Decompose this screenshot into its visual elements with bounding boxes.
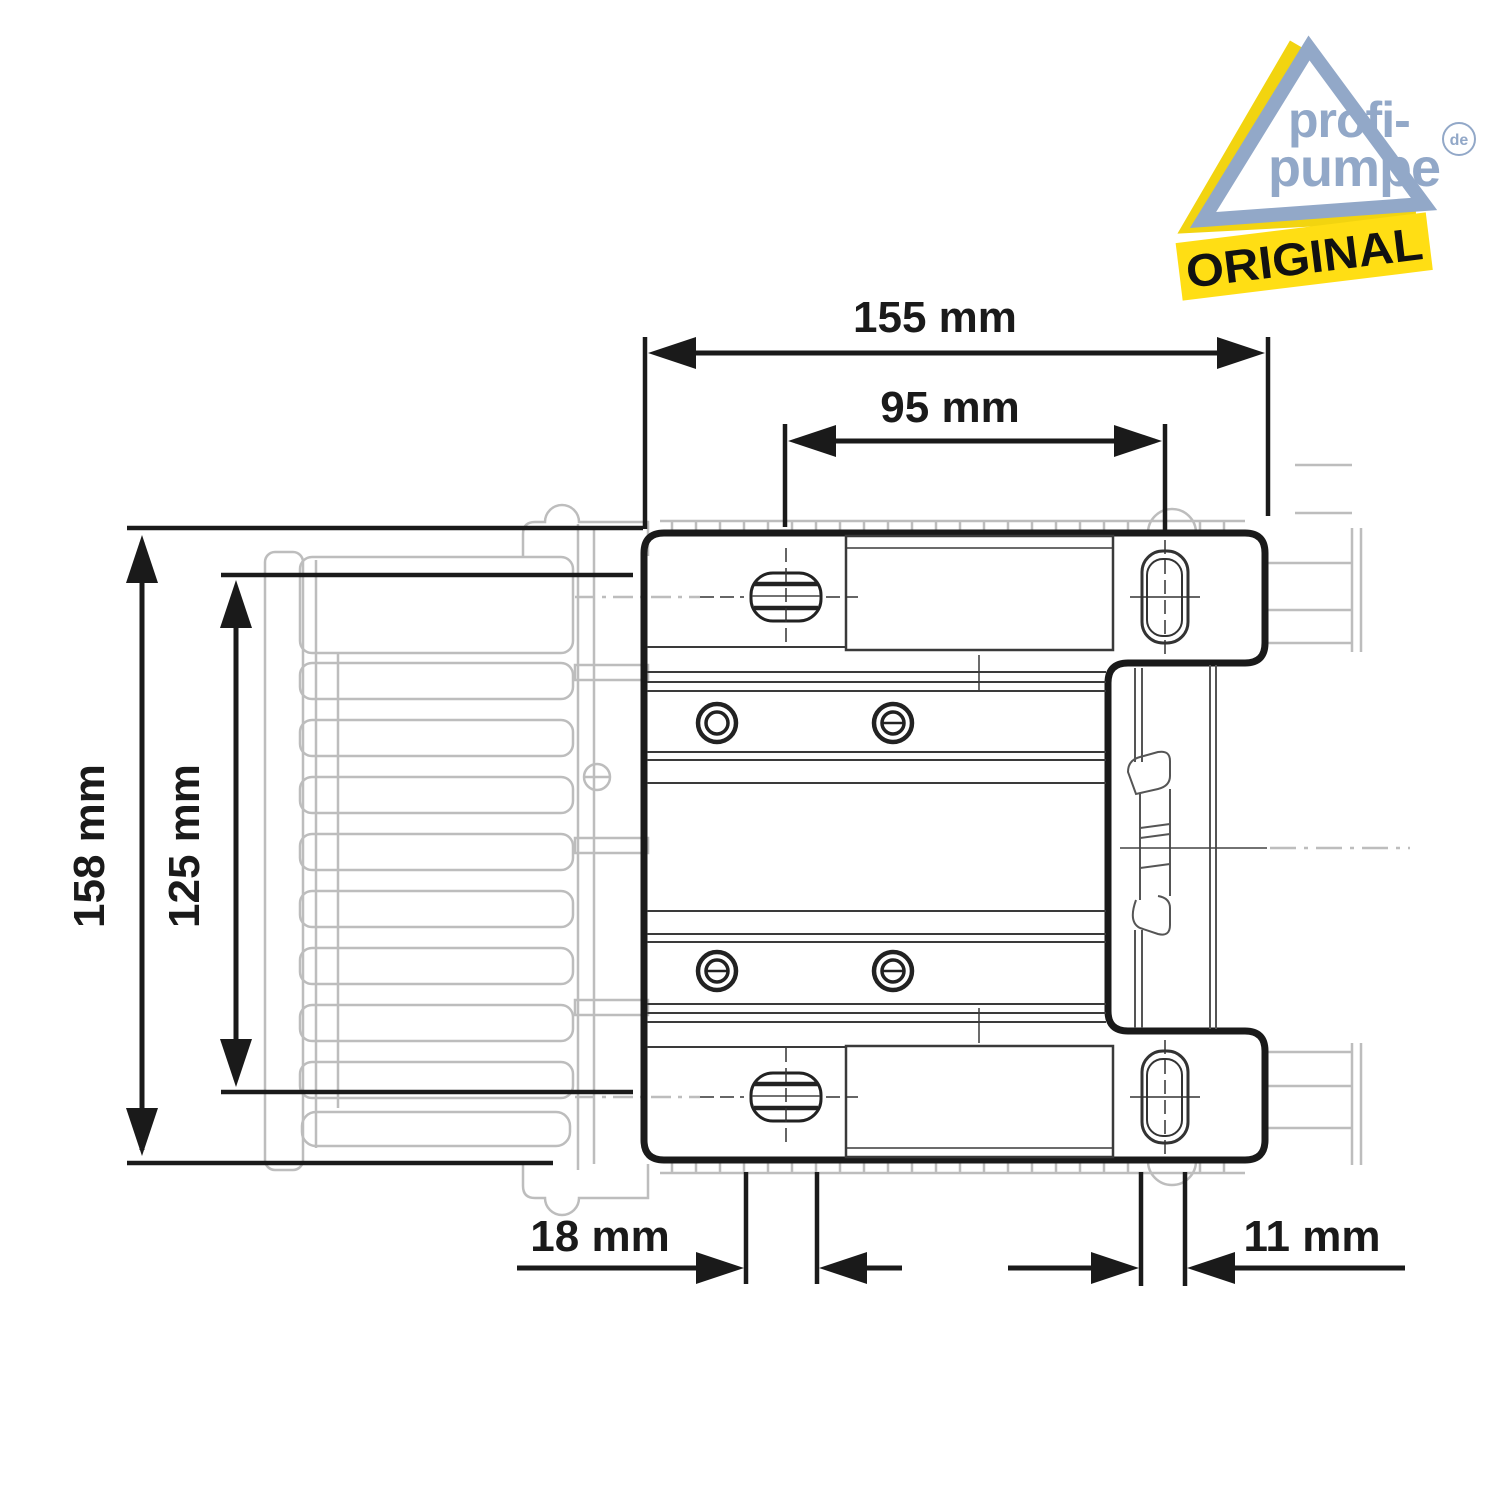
dim-label-slot-width: 11 mm xyxy=(1244,1212,1381,1261)
dim-label-hole-spacing: 95 mm xyxy=(880,383,1019,432)
logo-tld-text: de xyxy=(1450,132,1469,149)
technical-drawing-page: 155 mm 95 mm 158 mm 125 mm xyxy=(0,0,1500,1500)
logo-tld-badge: de xyxy=(1443,123,1475,155)
top-boss xyxy=(846,536,1113,650)
pump-dimension-diagram: 155 mm 95 mm 158 mm 125 mm xyxy=(0,0,1500,1500)
dim-label-body-height: 125 mm xyxy=(160,764,209,928)
dim-label-total-height: 158 mm xyxy=(65,764,114,928)
dim-label-foot-offset: 18 mm xyxy=(530,1212,669,1261)
dim-label-total-width: 155 mm xyxy=(853,293,1017,342)
bottom-boss xyxy=(846,1046,1113,1157)
logo-word-pumpe: pumpe xyxy=(1268,138,1440,198)
